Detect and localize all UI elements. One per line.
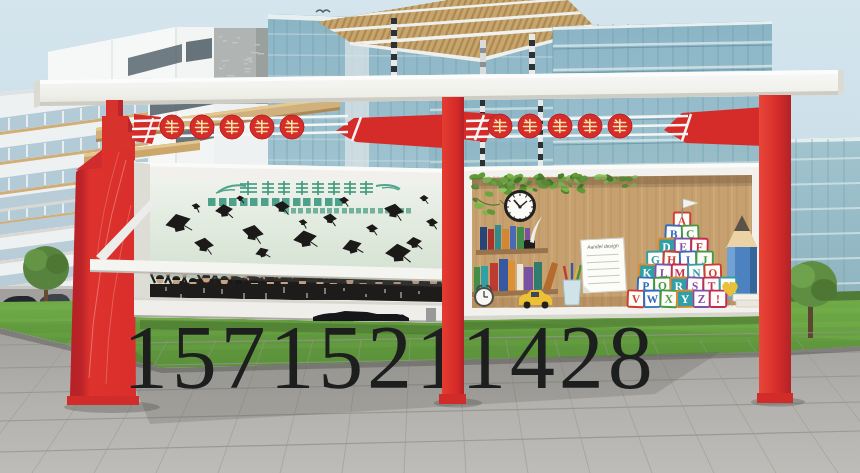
svg-text:!: !: [716, 293, 720, 305]
svg-text:V: V: [632, 293, 641, 305]
svg-text:W: W: [647, 293, 659, 305]
svg-text:Y: Y: [681, 293, 690, 305]
svg-text:Z: Z: [698, 293, 706, 305]
svg-text:15715211428: 15715211428: [123, 308, 656, 407]
svg-text:X: X: [664, 293, 673, 305]
